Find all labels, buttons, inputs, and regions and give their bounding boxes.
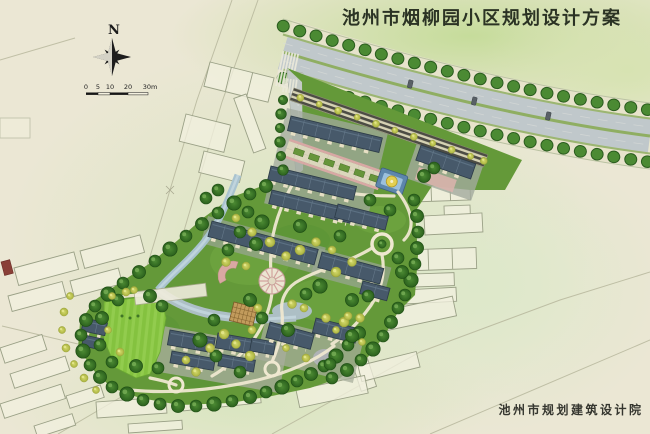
tree-plaza-center bbox=[378, 240, 386, 248]
site-plan-canvas: N 0 5 10 20 30m bbox=[0, 0, 650, 434]
scale-label: 0 bbox=[84, 83, 88, 91]
compass-north-label: N bbox=[108, 23, 120, 38]
site-plan: N 0 5 10 20 30m 池州市烟柳园小区规划设计方案 池州市规划建筑设计… bbox=[0, 0, 650, 434]
page-title: 池州市烟柳园小区规划设计方案 bbox=[342, 8, 622, 31]
context-building bbox=[0, 118, 30, 138]
context-building bbox=[424, 213, 483, 235]
institute-signature: 池州市规划建筑设计院 bbox=[496, 401, 646, 418]
context-building bbox=[414, 273, 454, 287]
scale-label: 5 bbox=[96, 83, 100, 91]
plaza-radial bbox=[259, 268, 285, 294]
scale-label: 20 bbox=[124, 83, 132, 91]
scale-label: 30m bbox=[143, 83, 158, 91]
scale-label: 10 bbox=[106, 83, 114, 91]
